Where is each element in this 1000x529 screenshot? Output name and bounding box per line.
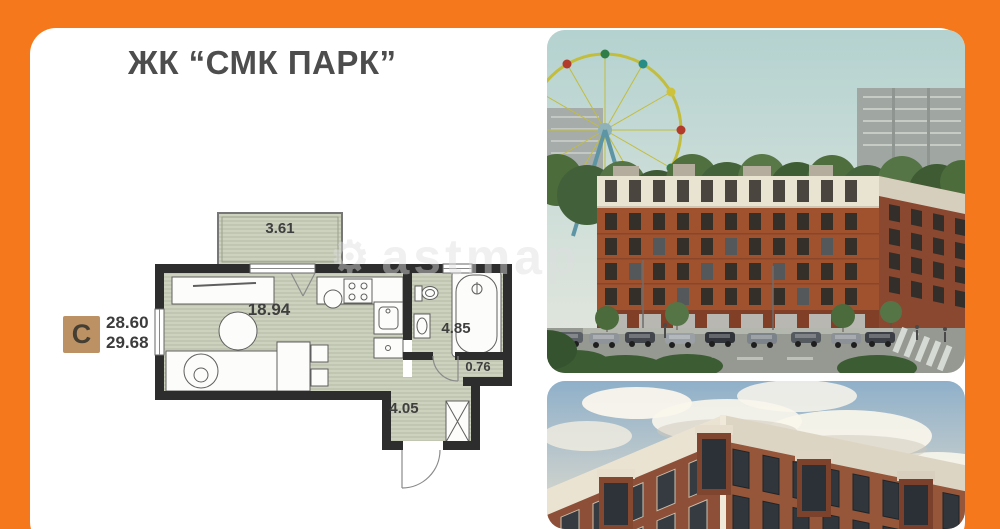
area-total-value: 29.68 [106, 333, 149, 353]
living-area-label: 18.94 [236, 300, 302, 320]
main-building [597, 164, 965, 332]
promo-sheet: ЖК “СМК ПАРК” [0, 0, 1000, 529]
page-title: ЖК “СМК ПАРК” [128, 44, 397, 82]
apartment-type-badge: С [63, 316, 100, 353]
photo-building-sky-render [547, 381, 965, 529]
niche-area-label: 0.76 [456, 359, 500, 374]
photo-building-street-render [547, 30, 965, 373]
bathroom-area-label: 4.85 [432, 320, 480, 337]
hallway-area-label: 4.05 [380, 400, 428, 417]
area-living-value: 28.60 [106, 313, 149, 333]
apartment-areas: 28.60 29.68 [106, 313, 149, 353]
balcony-area-label: 3.61 [252, 220, 308, 237]
